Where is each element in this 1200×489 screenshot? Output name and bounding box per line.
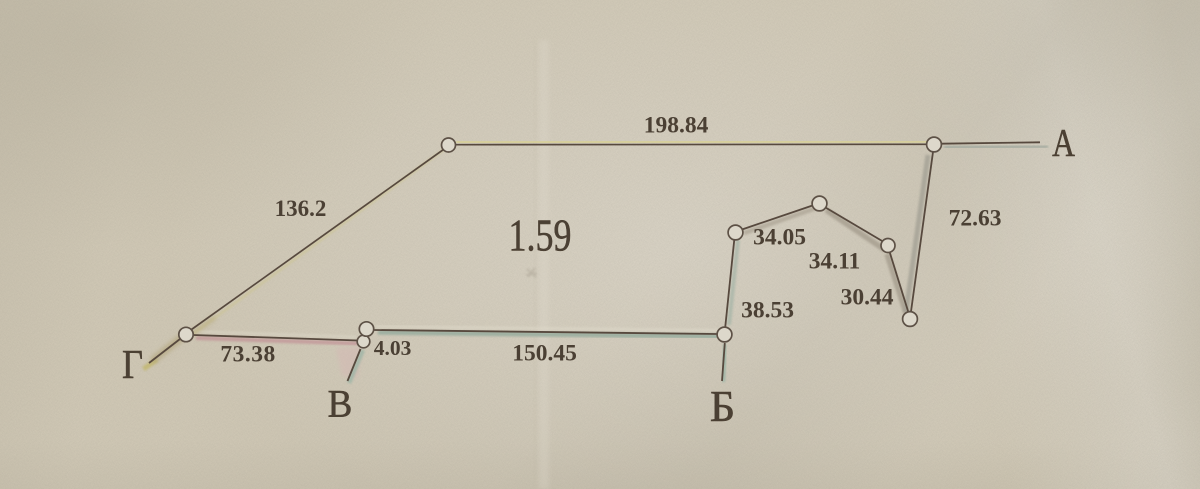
svg-text:4.03: 4.03 [374,336,412,360]
svg-text:38.53: 38.53 [741,298,794,324]
svg-text:30.44: 30.44 [841,285,894,311]
svg-text:73.38: 73.38 [220,342,275,368]
svg-text:72.63: 72.63 [949,206,1002,232]
svg-text:Г: Г [122,342,143,388]
svg-text:34.11: 34.11 [809,249,861,275]
svg-text:198.84: 198.84 [644,113,709,139]
svg-text:136.2: 136.2 [275,196,327,221]
svg-text:1.59: 1.59 [509,211,572,261]
svg-text:В: В [328,383,353,426]
svg-text:Б: Б [710,382,735,431]
svg-text:34.05: 34.05 [753,225,806,251]
svg-text:А: А [1052,120,1075,164]
svg-text:150.45: 150.45 [512,341,577,367]
